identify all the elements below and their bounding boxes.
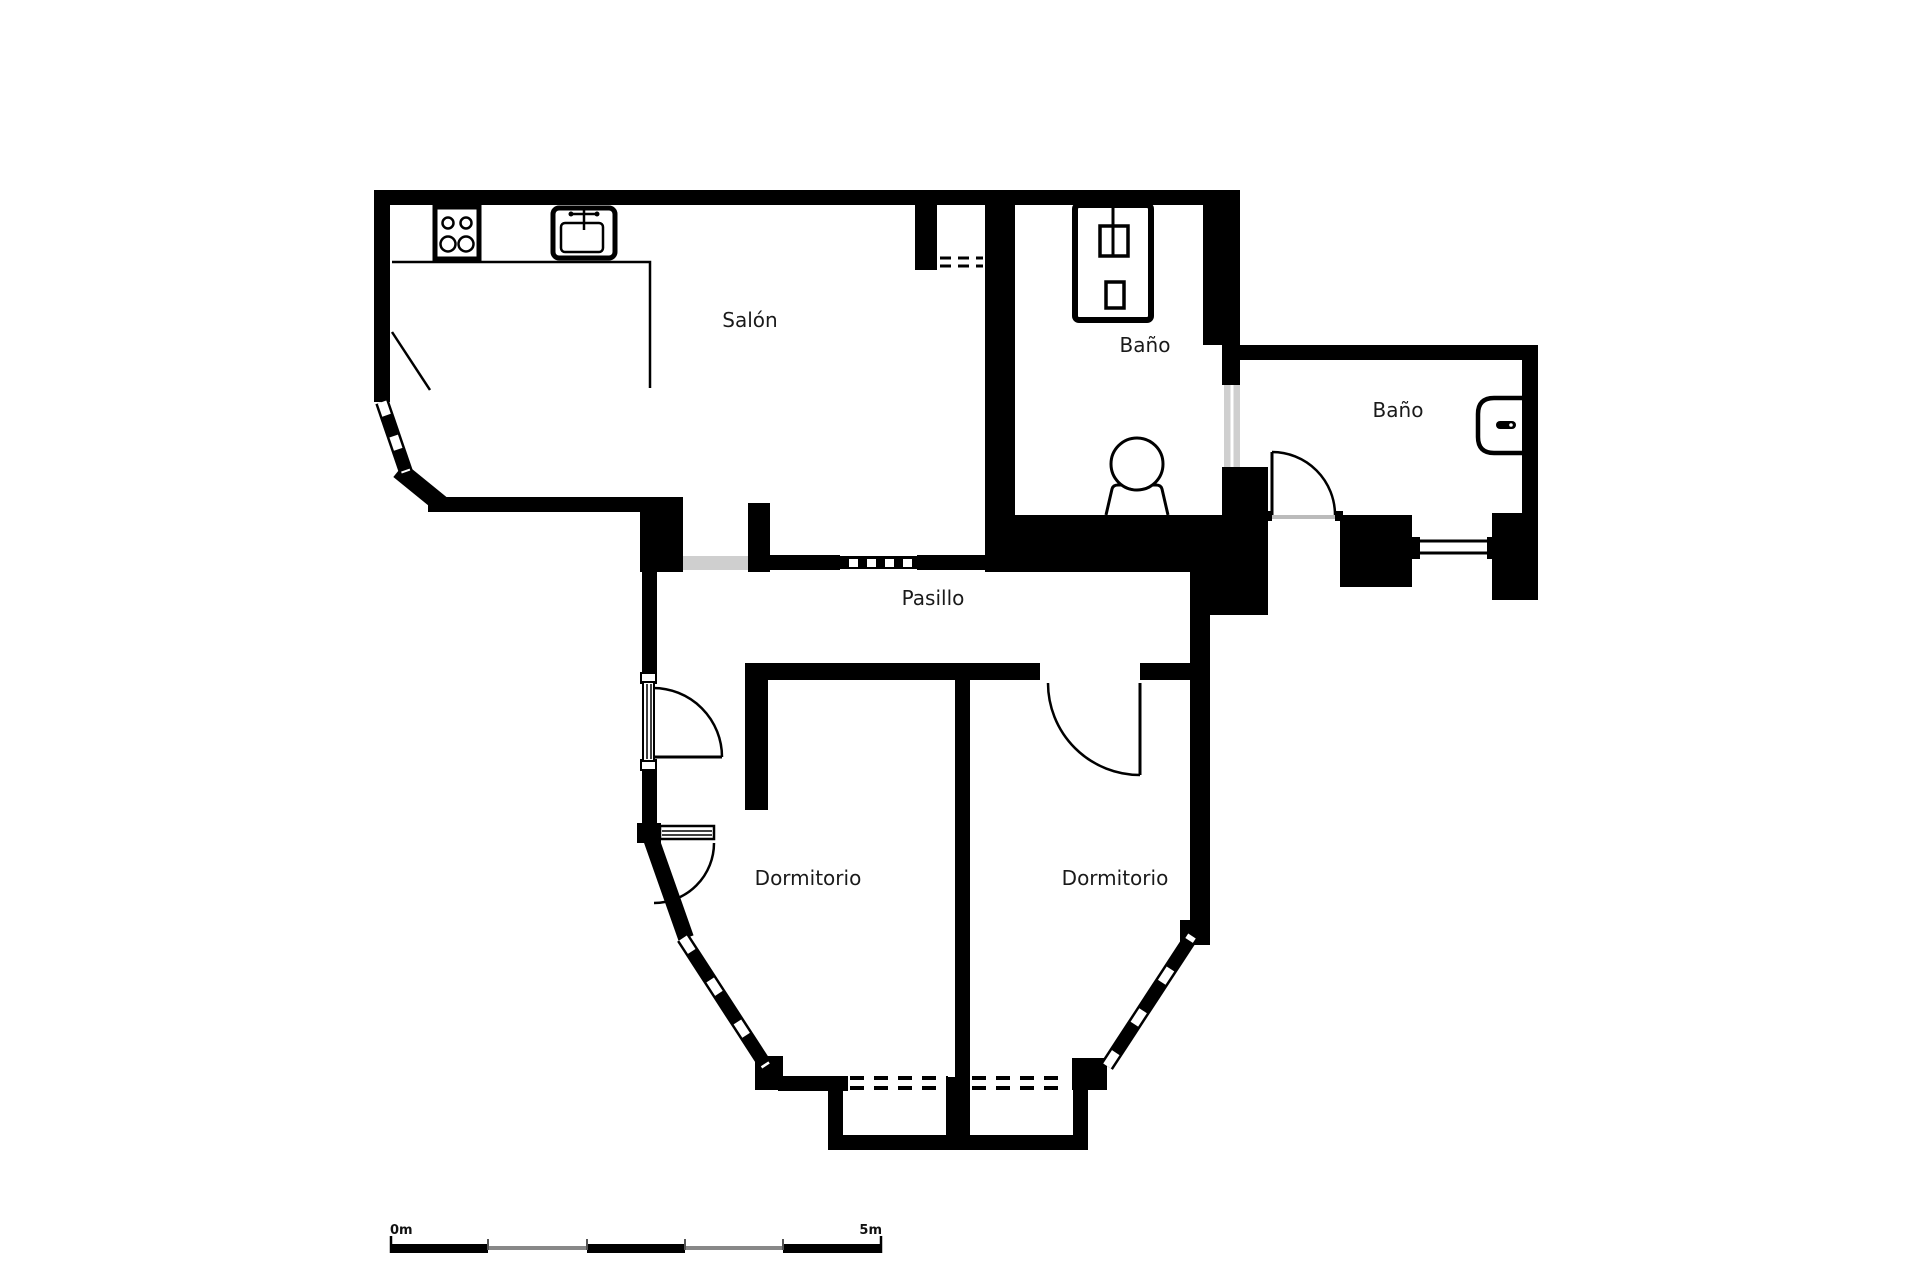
wall-dorm1-bay-diagonal <box>649 833 686 938</box>
closet-dashed-opening <box>940 258 983 266</box>
wall-balcony-east <box>1073 1077 1088 1147</box>
balcony-dashed-opening-left <box>850 1078 948 1088</box>
wall-bath2-north <box>1240 345 1538 360</box>
scale-segment-4 <box>685 1246 783 1250</box>
wall-bath2-south-block <box>1340 515 1412 587</box>
wall-bath2-se-corner <box>1492 513 1538 600</box>
wall-salon-west <box>374 190 390 402</box>
scale-segment-1 <box>390 1244 488 1253</box>
kitchen-sink-icon <box>553 208 615 258</box>
glass-partition-pasillo <box>683 556 748 570</box>
room-label-bano-1: Baño <box>1120 333 1171 357</box>
wall-stub-north-hall <box>748 503 770 572</box>
balcony-dashed-opening-right <box>972 1078 1068 1088</box>
scale-segment-3 <box>587 1244 685 1253</box>
wall-dorm1-stub <box>745 680 768 810</box>
kitchen-counter-diagonal <box>392 332 430 390</box>
wall-hall-north-a <box>770 555 840 570</box>
bay-window-west-icon <box>382 402 406 472</box>
room-label-pasillo: Pasillo <box>902 586 965 610</box>
wall-hall-north-b <box>917 555 985 570</box>
kitchen-counter-line <box>392 262 650 388</box>
room-labels: Salón Baño Baño Pasillo Dormitorio Dormi… <box>722 308 1423 890</box>
wall-block-bath1-se <box>1222 467 1268 515</box>
room-label-dormitorio-1: Dormitorio <box>755 866 862 890</box>
wall-salon-bath1-divider <box>985 204 1015 572</box>
walls <box>374 190 1538 1150</box>
toilet-icon <box>1106 438 1168 515</box>
bay-window-dorm2-icon <box>1107 936 1192 1066</box>
wall-junction-mass <box>1190 515 1268 615</box>
scale-bar: 0m 5m <box>390 1223 882 1253</box>
room-label-salon: Salón <box>722 308 777 332</box>
scale-segment-5 <box>783 1244 882 1253</box>
bathroom-sink-cabinet-icon <box>1075 205 1151 320</box>
room-label-dormitorio-2: Dormitorio <box>1062 866 1169 890</box>
wall-sink-icon <box>1478 398 1524 453</box>
room-label-bano-2: Baño <box>1373 398 1424 422</box>
window-bath2-south-icon <box>1412 537 1495 559</box>
kitchen-fixtures <box>392 207 650 390</box>
door-dorm2 <box>1048 683 1140 775</box>
wall-dorm-top-west <box>745 663 1040 680</box>
bay-window-dorm1-icon <box>683 938 766 1066</box>
wall-dorm1-west-a <box>642 572 657 680</box>
wall-bedroom-divider <box>955 680 970 1077</box>
door-bath2 <box>1264 452 1343 521</box>
wall-balcony-center-stub <box>946 1077 970 1150</box>
wall-closet-stub <box>915 204 937 270</box>
wall-dorm1-west-b <box>642 769 657 827</box>
wall-pasillo-corner-block <box>640 497 683 572</box>
sliding-door-icon <box>840 556 917 569</box>
floor-plan-drawing: Salón Baño Baño Pasillo Dormitorio Dormi… <box>0 0 1920 1280</box>
floor-plan-page: Salón Baño Baño Pasillo Dormitorio Dormi… <box>0 0 1920 1280</box>
wall-bath1-east <box>1203 190 1240 385</box>
scale-start-label: 0m <box>390 1223 413 1238</box>
stove-four-burners-icon <box>435 207 479 259</box>
scale-end-label: 5m <box>859 1223 882 1238</box>
scale-segment-2 <box>488 1246 587 1250</box>
casement-window-dorm1-west-icon <box>641 673 722 770</box>
wall-dorm2-east <box>1190 615 1210 945</box>
